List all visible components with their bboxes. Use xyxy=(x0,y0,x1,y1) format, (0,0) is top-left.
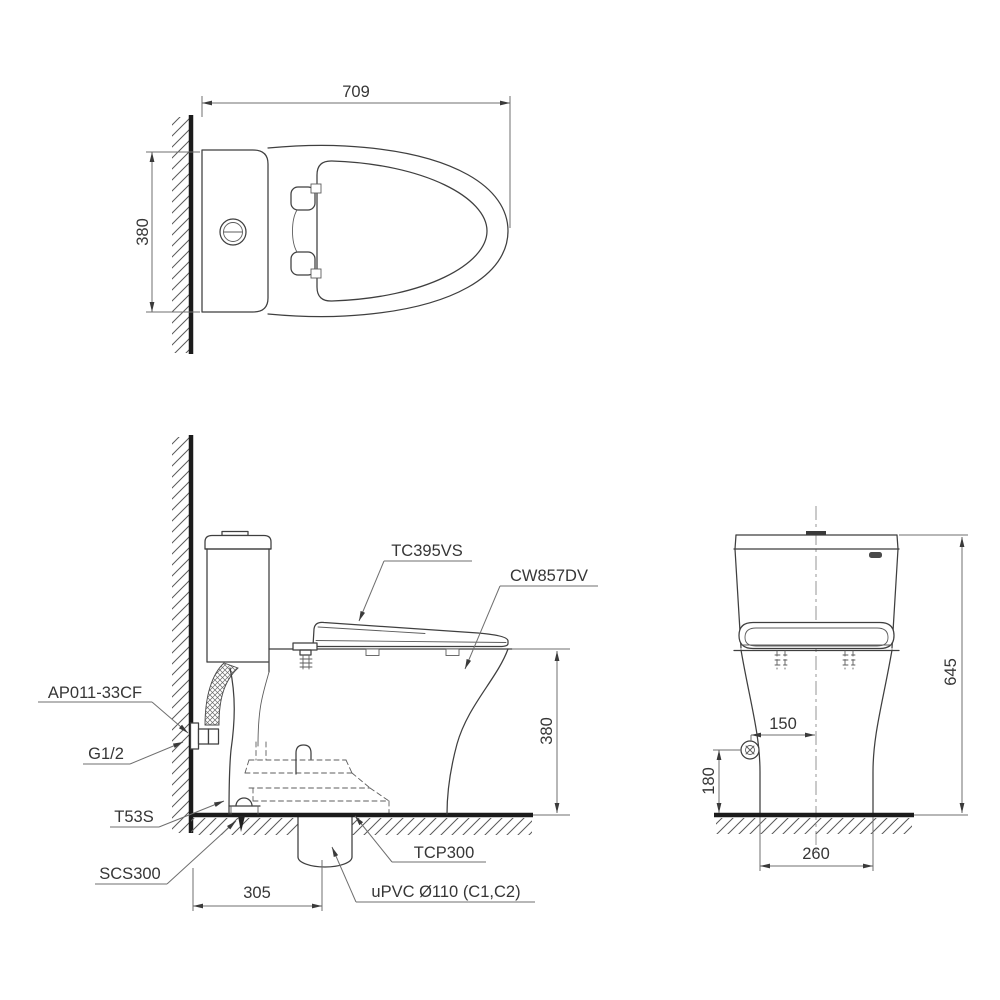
dim-side-seat-height: 380 xyxy=(538,717,556,745)
dim-front-base-width: 260 xyxy=(802,845,830,863)
drain-pipe-shape xyxy=(298,814,352,867)
pedestal-inner-line xyxy=(258,672,269,746)
top-view: 709 380 xyxy=(134,83,510,354)
seat-bolts-front xyxy=(775,651,855,669)
dimension-front-supply-height: 180 xyxy=(700,750,741,813)
floor-hatch xyxy=(716,818,912,834)
label-supply-thread: G1/2 xyxy=(88,745,124,763)
floor-bolt-cap xyxy=(229,798,260,814)
tank-outline-side xyxy=(205,532,271,673)
leader-bowl-model xyxy=(465,586,500,669)
supply-inlet xyxy=(741,741,759,759)
label-seat-model: TC395VS xyxy=(391,542,463,560)
pedestal-left-profile xyxy=(741,650,760,813)
brand-logo-mark xyxy=(869,552,882,558)
flush-button xyxy=(220,219,246,245)
dimension-front-supply-offset: 150 xyxy=(751,715,815,742)
tank-outline-top xyxy=(202,150,268,312)
flush-button-front xyxy=(806,531,826,535)
supply-valve xyxy=(191,723,219,749)
dim-side-outlet-offset: 305 xyxy=(243,884,271,902)
front-view: 150 180 645 260 xyxy=(700,506,968,871)
dimension-side-outlet-offset: 305 xyxy=(193,860,322,911)
seat-lid-side xyxy=(313,622,508,646)
label-trap-adapter: TCP300 xyxy=(414,844,475,862)
seat-lid-top xyxy=(317,161,487,301)
technical-drawing-page: 709 380 xyxy=(0,0,1000,1000)
label-bowl-model: CW857DV xyxy=(510,567,588,585)
dim-front-total-height: 645 xyxy=(942,658,960,686)
wall-hatch xyxy=(172,437,189,833)
dimension-side-seat-height: 380 xyxy=(538,651,557,813)
dim-top-width: 709 xyxy=(342,83,370,101)
dim-top-depth: 380 xyxy=(134,218,152,246)
pedestal-right-profile xyxy=(873,650,892,813)
dim-front-supply-height: 180 xyxy=(700,767,718,795)
leader-seat-model xyxy=(359,561,384,621)
label-fixing-bolt: T53S xyxy=(114,808,153,826)
dim-front-supply-offset: 150 xyxy=(769,715,797,733)
label-floor-flange: SCS300 xyxy=(99,865,160,883)
label-supply-hose: AP011-33CF xyxy=(48,684,142,702)
bowl-front-profile xyxy=(447,649,508,814)
trapway-hidden xyxy=(245,742,389,813)
label-drain-pipe: uPVC Ø110 (C1,C2) xyxy=(371,883,520,901)
seat-front xyxy=(734,623,899,651)
side-view: 380 305 TC395VS CW857DV AP011-33CF G1/2 … xyxy=(38,435,598,911)
technical-drawing-canvas: 709 380 xyxy=(0,0,1000,1000)
pedestal-back-profile xyxy=(229,668,234,814)
refill-hook xyxy=(296,745,311,774)
dimension-front-total-height: 645 xyxy=(899,535,968,813)
